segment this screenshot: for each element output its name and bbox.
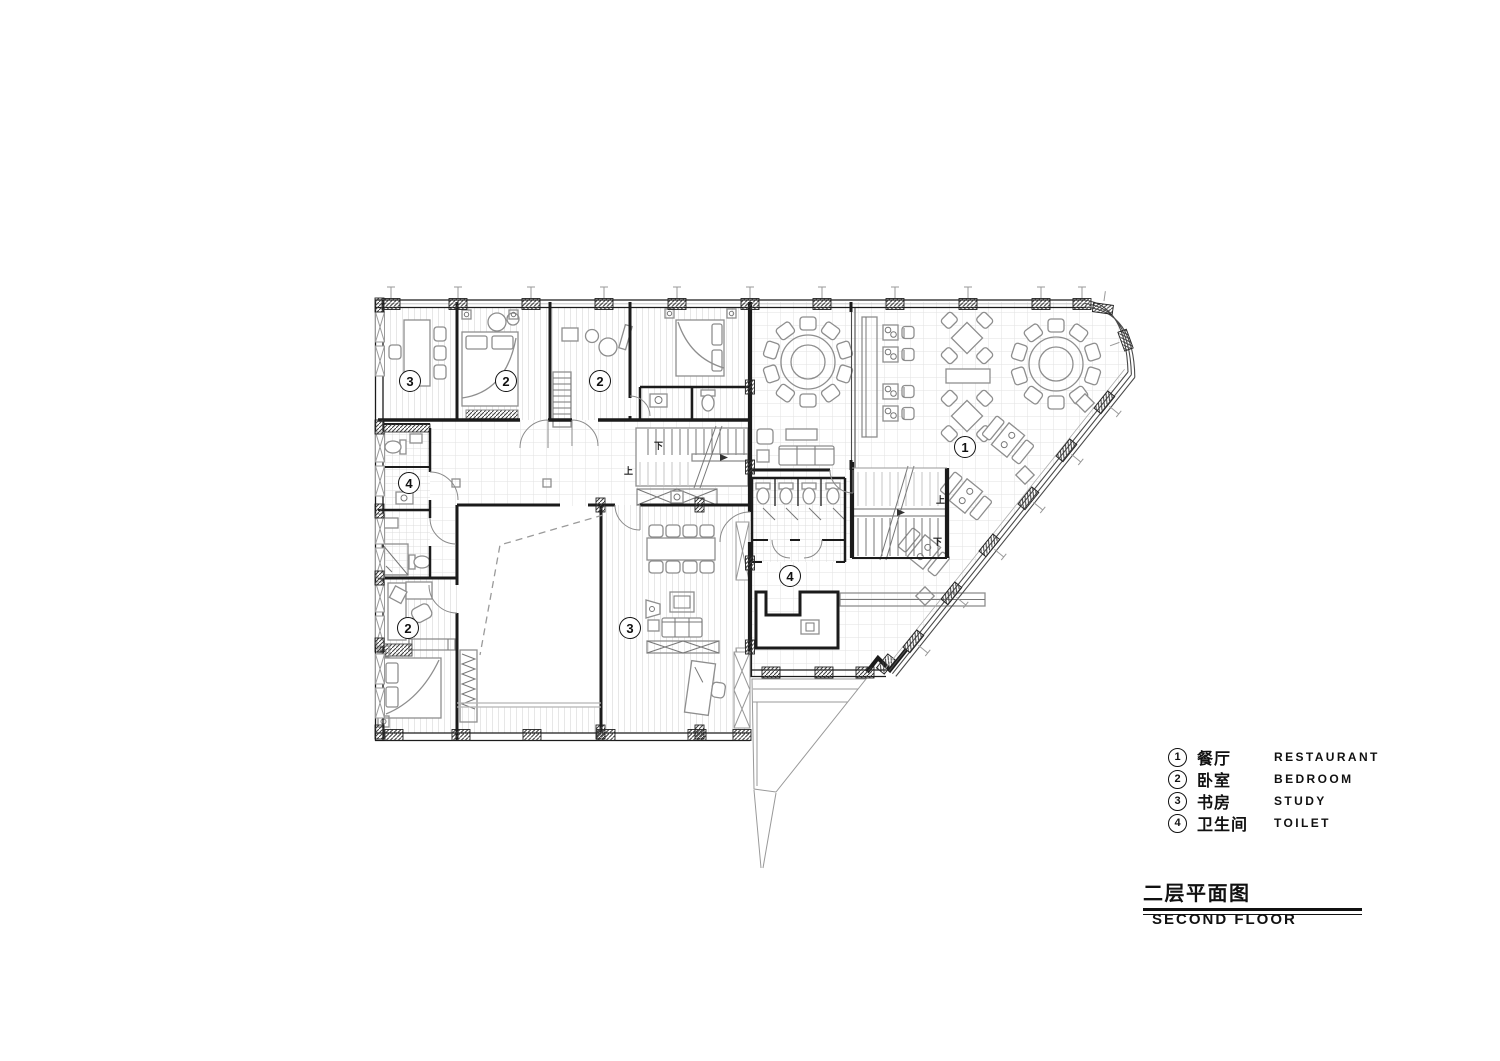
legend-label-zh: 书房: [1197, 789, 1231, 813]
title-block: 二层平面图SECOND FLOOR: [1143, 877, 1369, 917]
legend-label-zh: 餐厅: [1197, 745, 1231, 769]
legend-label-en: TOILET: [1274, 816, 1331, 830]
legend-item-bedroom: 2 卧室 BEDROOM: [1168, 768, 1231, 790]
svg-text:上: 上: [624, 465, 633, 476]
svg-text:上: 上: [936, 494, 945, 505]
legend-label-zh: 卫生间: [1197, 811, 1248, 835]
room-label-bedroom: 2: [397, 617, 419, 639]
legend-label-en: RESTAURANT: [1274, 750, 1380, 764]
legend-label-en: BEDROOM: [1274, 772, 1353, 786]
room-label-toilet: 4: [398, 472, 420, 494]
floor-plan-sheet: 下 上: [0, 0, 1500, 1061]
title-rule-thick: [1143, 908, 1362, 911]
legend: 1 餐厅 RESTAURANT 2 卧室 BEDROOM 3 书房 STUDY …: [1168, 746, 1398, 842]
title-zh: 二层平面图: [1143, 877, 1251, 911]
legend-num: 4: [1168, 814, 1187, 833]
room-label-restaurant: 1: [954, 436, 976, 458]
room-label-bedroom: 2: [495, 370, 517, 392]
legend-label-en: STUDY: [1274, 794, 1327, 808]
title-rule-thin: [1143, 914, 1362, 915]
room-label-study: 3: [619, 617, 641, 639]
room-label-bedroom: 2: [589, 370, 611, 392]
legend-num: 3: [1168, 792, 1187, 811]
legend-item-study: 3 书房 STUDY: [1168, 790, 1231, 812]
legend-label-zh: 卧室: [1197, 767, 1231, 791]
room-label-study: 3: [399, 370, 421, 392]
legend-item-restaurant: 1 餐厅 RESTAURANT: [1168, 746, 1231, 768]
room-label-toilet: 4: [779, 565, 801, 587]
legend-num: 1: [1168, 748, 1187, 767]
svg-text:下: 下: [654, 441, 663, 451]
legend-item-toilet: 4 卫生间 TOILET: [1168, 812, 1248, 834]
legend-num: 2: [1168, 770, 1187, 789]
svg-text:下: 下: [933, 537, 942, 547]
